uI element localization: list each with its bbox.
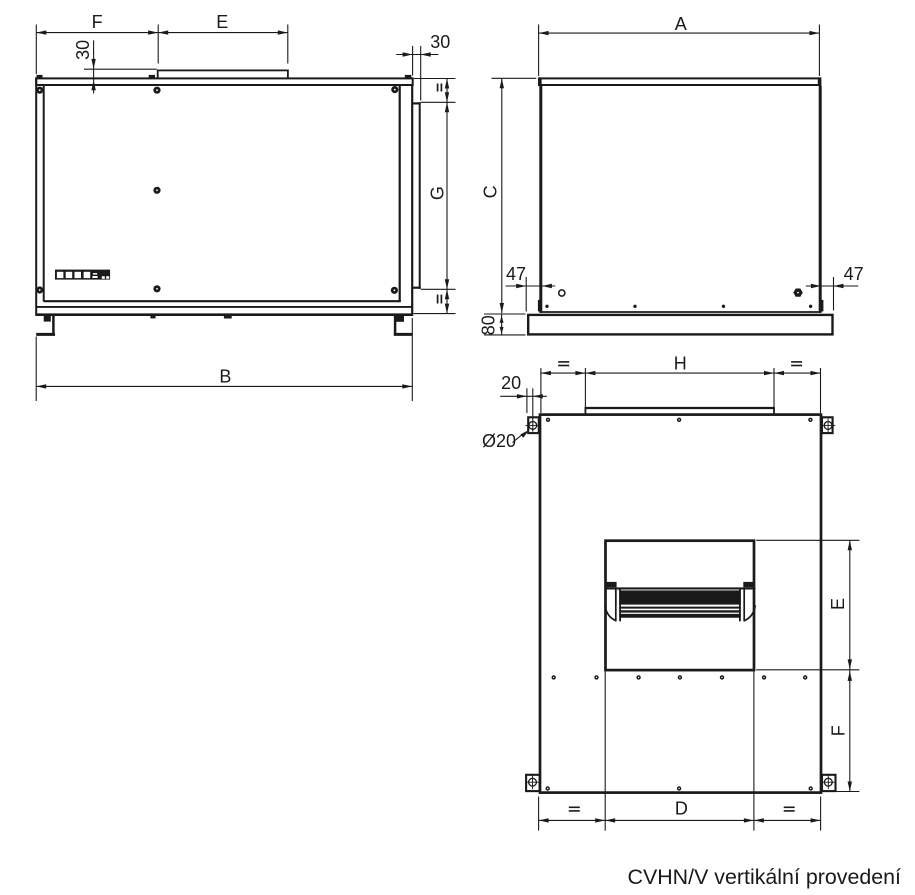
svg-text:F: F: [92, 12, 103, 32]
svg-text:C: C: [481, 185, 501, 198]
svg-text:80: 80: [479, 315, 499, 335]
svg-text:D: D: [675, 799, 688, 819]
svg-text:A: A: [675, 14, 687, 34]
svg-text:Ø20: Ø20: [482, 431, 516, 451]
svg-text:47: 47: [844, 264, 864, 284]
svg-text:E: E: [828, 598, 848, 610]
svg-text:E: E: [216, 12, 228, 32]
svg-text:20: 20: [501, 373, 521, 393]
svg-text:CVHN/V vertikální provedení: CVHN/V vertikální provedení: [628, 866, 902, 889]
svg-text:B: B: [219, 367, 231, 387]
svg-text:H: H: [674, 353, 687, 373]
svg-text:G: G: [427, 186, 447, 200]
svg-text:30: 30: [430, 32, 450, 52]
svg-text:30: 30: [73, 40, 93, 60]
svg-text:F: F: [828, 725, 848, 736]
svg-text:47: 47: [506, 264, 526, 284]
